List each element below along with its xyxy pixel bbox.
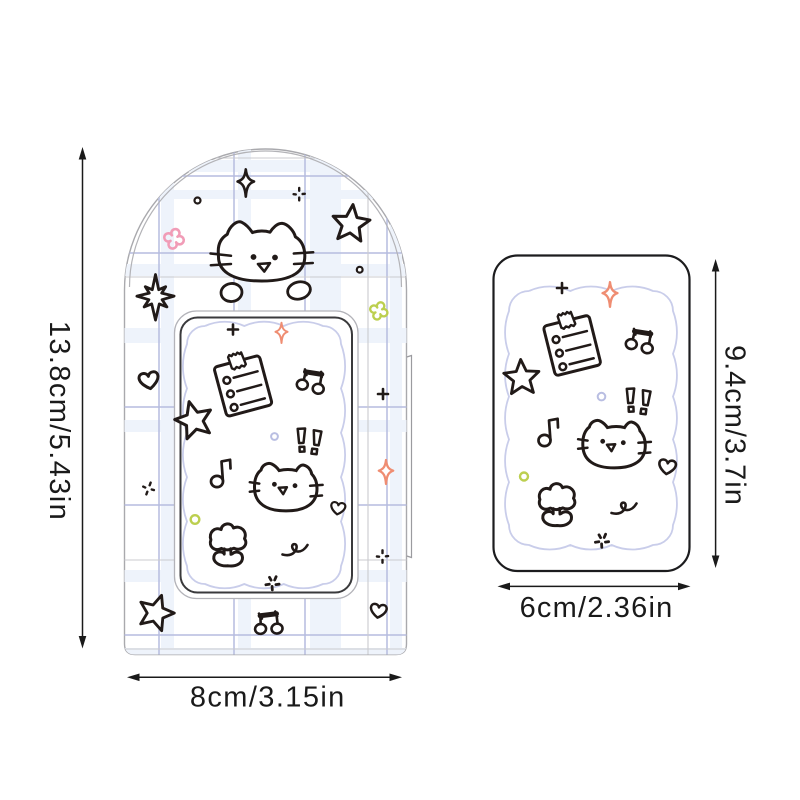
svg-text:8cm/3.15in: 8cm/3.15in (190, 682, 346, 714)
svg-text:6cm/2.36in: 6cm/2.36in (520, 592, 674, 624)
svg-text:13.8cm/5.43in: 13.8cm/5.43in (43, 321, 75, 521)
svg-text:9.4cm/3.7in: 9.4cm/3.7in (719, 345, 751, 506)
